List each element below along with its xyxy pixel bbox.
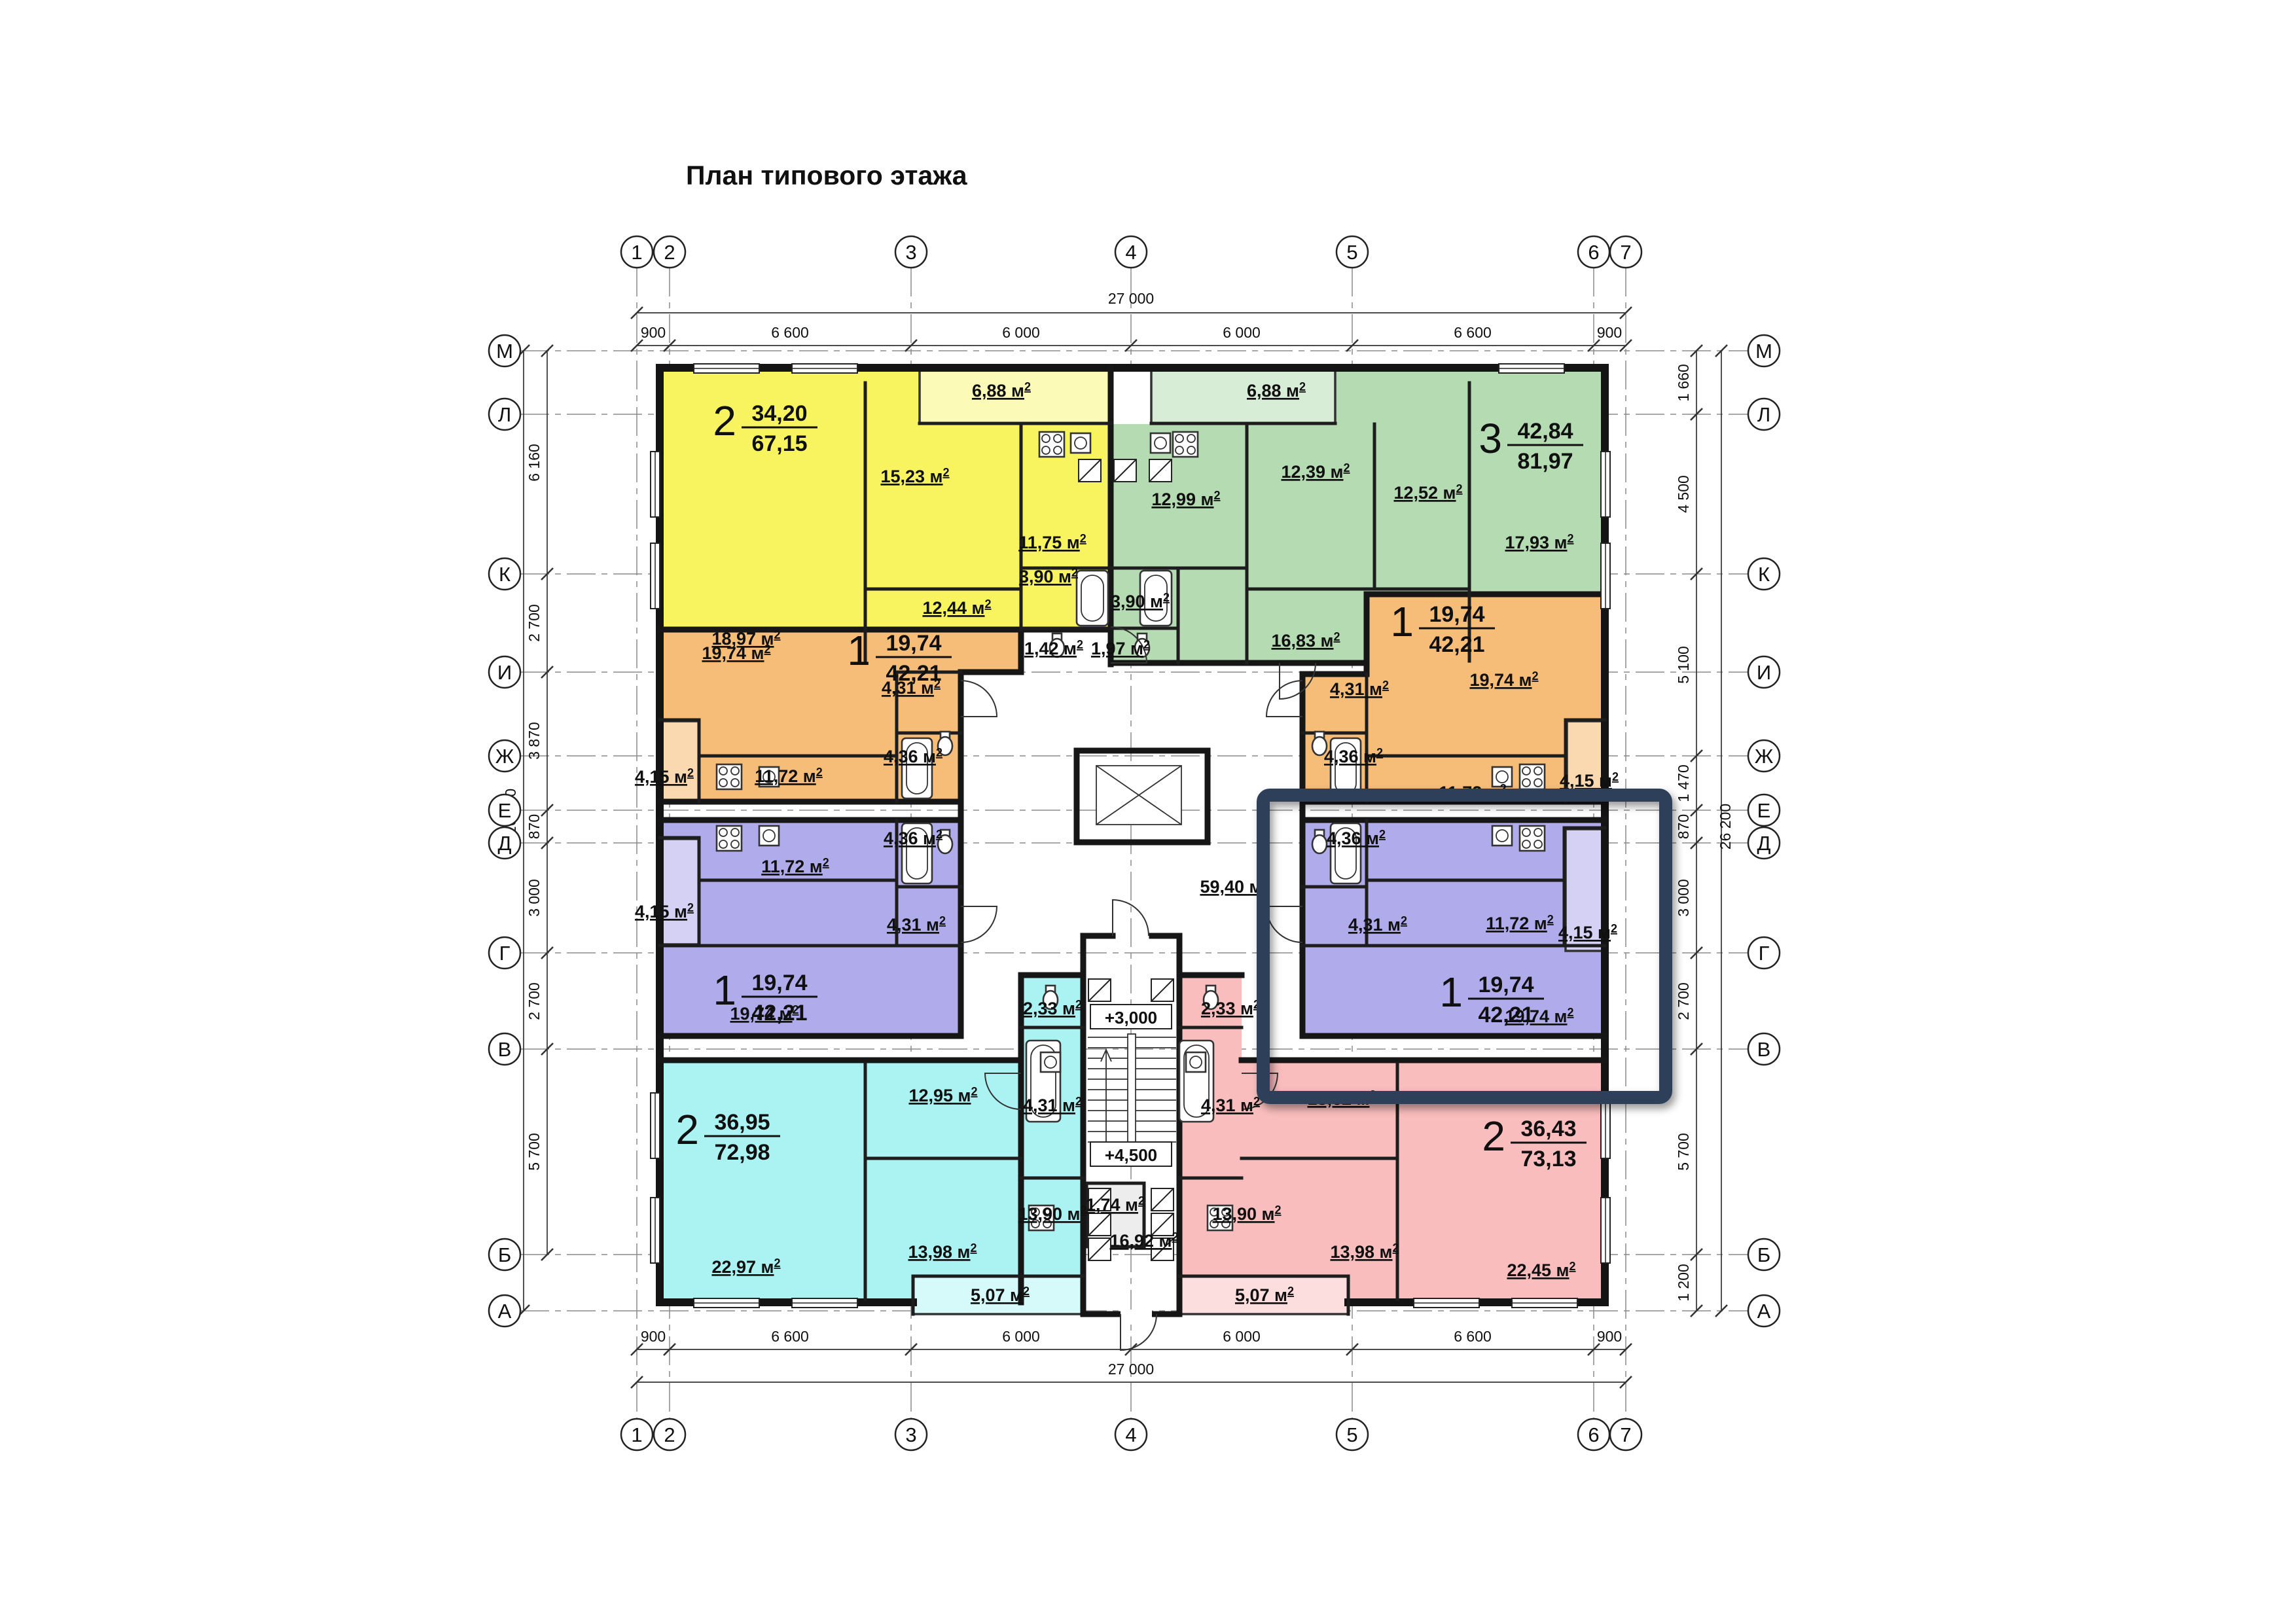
- room-area-label: 22,45 м2: [1507, 1260, 1575, 1280]
- balcony-orange-left: [661, 721, 699, 800]
- axis-bubble-Ж: Ж: [489, 740, 520, 772]
- room-area-label: 15,23 м2: [880, 466, 949, 486]
- level-mark: +4,500: [1090, 1142, 1172, 1166]
- balcony-green: [1151, 370, 1335, 423]
- axis-bubble-Л: Л: [1748, 399, 1780, 430]
- svg-text:В: В: [498, 1038, 512, 1061]
- stove-icon: [1039, 432, 1064, 457]
- dimension-label: 870: [1675, 814, 1692, 839]
- window-icon: [792, 364, 857, 373]
- room-area-label: 4,31 м2: [1023, 1095, 1082, 1115]
- dimension-label: 6 000: [1002, 1328, 1040, 1345]
- room-area-label: 6,88 м2: [1247, 380, 1306, 401]
- svg-text:36,95: 36,95: [714, 1110, 770, 1135]
- room-area-label: 13,90 м2: [1018, 1204, 1086, 1224]
- axis-bubble-Ж: Ж: [1748, 740, 1780, 772]
- vent-shaft-icon: [1088, 979, 1111, 1001]
- room-area-label: 12,39 м2: [1281, 461, 1350, 482]
- axis-bubble-И: И: [1748, 656, 1780, 688]
- dimension-label: 5 700: [1675, 1133, 1692, 1171]
- svg-text:И: И: [497, 661, 512, 684]
- dimension-label: 6 600: [771, 1328, 809, 1345]
- svg-text:Г: Г: [1759, 942, 1770, 965]
- stove-icon: [1520, 826, 1545, 851]
- axis-bubble-К: К: [1748, 558, 1780, 590]
- sink-icon: [1186, 1052, 1206, 1072]
- svg-text:1: 1: [631, 1423, 642, 1446]
- room-area-label: 11,75 м2: [1018, 532, 1086, 552]
- room-area-label: 4,15 м2: [635, 901, 694, 921]
- axis-bubble-7: 7: [1610, 236, 1641, 268]
- stove-icon: [1173, 432, 1198, 457]
- axis-bubble-6: 6: [1578, 1419, 1609, 1450]
- svg-text:Д: Д: [498, 832, 512, 855]
- window-icon: [651, 452, 660, 517]
- window-icon: [651, 543, 660, 609]
- stove-icon: [717, 764, 742, 789]
- sink-icon: [1041, 1052, 1060, 1072]
- svg-text:73,13: 73,13: [1520, 1147, 1576, 1171]
- svg-text:19,74: 19,74: [886, 631, 941, 656]
- dimension-label: 3 000: [526, 879, 543, 917]
- window-icon: [694, 364, 759, 373]
- dimension-label: 1 200: [1675, 1264, 1692, 1302]
- window-icon: [694, 1298, 759, 1308]
- svg-text:Б: Б: [1757, 1243, 1770, 1266]
- svg-text:42,21: 42,21: [886, 661, 941, 686]
- room-area-label: 11,72 м2: [761, 856, 829, 876]
- room-area-label: 4,36 м2: [1324, 746, 1383, 766]
- dimension-label: 6 160: [526, 444, 543, 482]
- svg-text:Б: Б: [498, 1243, 511, 1266]
- svg-text:М: М: [1755, 340, 1772, 363]
- svg-text:4: 4: [1125, 1423, 1136, 1446]
- axis-bubble-3: 3: [895, 236, 927, 268]
- window-icon: [651, 1198, 660, 1263]
- room-area-label: 11,72 м2: [1486, 913, 1554, 933]
- svg-text:Ж: Ж: [1755, 745, 1774, 768]
- dimension-label: 3 000: [1675, 879, 1692, 917]
- dimension-label: 1 470: [1675, 764, 1692, 802]
- svg-text:36,43: 36,43: [1520, 1116, 1576, 1141]
- floor-plan-svg: План типового этажа: [0, 0, 2296, 1623]
- svg-text:2: 2: [713, 397, 736, 444]
- room-area-label: 4,36 м2: [884, 746, 942, 766]
- axis-bubble-В: В: [489, 1033, 520, 1065]
- window-icon: [1601, 1198, 1610, 1263]
- room-area-label: 4,15 м2: [1558, 922, 1617, 942]
- svg-text:А: А: [498, 1300, 512, 1323]
- room-area-label: 2,33 м2: [1023, 998, 1082, 1018]
- toilet-icon: [1312, 830, 1327, 853]
- vent-shaft-icon: [1079, 459, 1101, 482]
- room-area-label: 19,74 м2: [1469, 669, 1538, 690]
- room-area-label: 22,97 м2: [711, 1257, 780, 1277]
- axis-bubble-2: 2: [654, 1419, 685, 1450]
- svg-text:Д: Д: [1757, 832, 1771, 855]
- svg-text:1: 1: [847, 627, 870, 674]
- dimension-label: 27 000: [1108, 1361, 1154, 1378]
- room-area-label: 11,72 м2: [755, 766, 823, 786]
- room-area-label: 3,90 м2: [1019, 566, 1078, 586]
- axis-bubble-7: 7: [1610, 1419, 1641, 1450]
- room-area-label: 1,97 м2: [1091, 638, 1150, 658]
- room-area-label: 5,07 м2: [971, 1285, 1030, 1305]
- room-area-label: 2,33 м2: [1201, 998, 1260, 1018]
- dimension-label: 6 600: [1454, 324, 1492, 341]
- window-icon: [792, 1298, 857, 1308]
- svg-text:42,21: 42,21: [1429, 632, 1484, 657]
- sink-icon: [759, 826, 779, 846]
- svg-text:+4,500: +4,500: [1105, 1145, 1157, 1165]
- window-icon: [1601, 452, 1610, 517]
- dimension-label: 2 700: [1675, 982, 1692, 1020]
- level-mark: +3,000: [1090, 1005, 1172, 1029]
- svg-text:Ж: Ж: [495, 745, 514, 768]
- dimension-label: 4 500: [1675, 475, 1692, 513]
- svg-text:6: 6: [1588, 1423, 1599, 1446]
- svg-text:В: В: [1757, 1038, 1771, 1061]
- svg-text:1: 1: [1390, 598, 1414, 645]
- axis-bubble-5: 5: [1336, 1419, 1368, 1450]
- dimension-label: 6 000: [1223, 324, 1261, 341]
- axis-bubble-И: И: [489, 656, 520, 688]
- svg-text:81,97: 81,97: [1517, 449, 1573, 474]
- dimension-label: 27 000: [1108, 290, 1154, 307]
- room-area-label: 4,36 м2: [1327, 828, 1386, 848]
- svg-text:2: 2: [664, 1423, 675, 1446]
- svg-text:Е: Е: [498, 799, 512, 822]
- stove-icon: [1520, 764, 1545, 789]
- sink-icon: [1492, 826, 1512, 846]
- dimension-label: 900: [1597, 324, 1622, 341]
- axis-bubble-М: М: [1748, 335, 1780, 366]
- vent-shaft-icon: [1088, 1238, 1111, 1260]
- vent-shaft-icon: [1149, 459, 1172, 482]
- bathtub-icon: [1077, 571, 1108, 626]
- room-area-label: 1,74 м2: [1086, 1194, 1145, 1215]
- axis-bubble-Е: Е: [1748, 794, 1780, 826]
- vent-shaft-icon: [1151, 1188, 1174, 1211]
- axis-bubble-3: 3: [895, 1419, 927, 1450]
- room-area-label: 12,99 м2: [1151, 489, 1220, 509]
- window-icon: [651, 1093, 660, 1158]
- svg-text:М: М: [496, 340, 513, 363]
- sink-icon: [1071, 433, 1090, 453]
- svg-text:А: А: [1757, 1300, 1771, 1323]
- room-area-label: 12,95 м2: [908, 1085, 977, 1105]
- svg-text:2: 2: [675, 1106, 699, 1153]
- dimension-label: 900: [1597, 1328, 1622, 1345]
- axis-bubble-М: М: [489, 335, 520, 366]
- sink-icon: [1151, 433, 1170, 453]
- svg-text:7: 7: [1620, 241, 1631, 264]
- svg-text:Е: Е: [1757, 799, 1771, 822]
- room-area-label: 13,90 м2: [1212, 1204, 1281, 1224]
- svg-text:1: 1: [1439, 969, 1463, 1016]
- page-title: План типового этажа: [686, 160, 968, 190]
- vent-shaft-icon: [1114, 459, 1136, 482]
- svg-text:И: И: [1757, 661, 1771, 684]
- room-area-label: 3,90 м2: [1111, 591, 1170, 611]
- svg-text:42,21: 42,21: [1478, 1003, 1534, 1027]
- room-area-label: 4,31 м2: [1348, 914, 1407, 935]
- svg-text:3: 3: [1479, 415, 1502, 462]
- svg-text:6: 6: [1588, 241, 1599, 264]
- dimension-label: 6 600: [1454, 1328, 1492, 1345]
- room-area-label: 4,31 м2: [1201, 1095, 1260, 1115]
- svg-text:42,21: 42,21: [751, 1001, 807, 1026]
- svg-text:19,74: 19,74: [751, 971, 807, 995]
- svg-text:5: 5: [1346, 241, 1357, 264]
- room-area-label: 6,88 м2: [972, 380, 1031, 401]
- svg-text:5: 5: [1346, 1423, 1357, 1446]
- dimension-label: 5 700: [526, 1133, 543, 1171]
- dimension-label: 870: [526, 814, 543, 839]
- svg-text:1: 1: [713, 967, 736, 1014]
- svg-text:2: 2: [1482, 1113, 1505, 1160]
- axis-bubble-6: 6: [1578, 236, 1609, 268]
- axis-bubble-4: 4: [1115, 236, 1147, 268]
- axis-bubble-Л: Л: [489, 399, 520, 430]
- room-area-label: 1,42 м2: [1024, 638, 1083, 658]
- axis-bubble-К: К: [489, 558, 520, 590]
- axis-bubble-2: 2: [654, 236, 685, 268]
- axis-bubble-Д: Д: [489, 827, 520, 859]
- axis-bubble-Б: Б: [1748, 1239, 1780, 1270]
- svg-text:72,98: 72,98: [714, 1140, 770, 1165]
- axis-bubble-Д: Д: [1748, 827, 1780, 859]
- room-area-label: 16,83 м2: [1271, 630, 1340, 651]
- axis-bubble-А: А: [489, 1295, 520, 1327]
- room-area-label: 4,31 м2: [1330, 679, 1389, 699]
- room-area-label: 13,98 м2: [908, 1241, 977, 1262]
- svg-text:67,15: 67,15: [751, 431, 807, 456]
- dimension-label: 6 000: [1223, 1328, 1261, 1345]
- vent-shaft-icon: [1151, 979, 1174, 1001]
- axis-bubble-5: 5: [1336, 236, 1368, 268]
- window-icon: [1414, 1298, 1479, 1308]
- room-area-label: 4,15 м2: [635, 766, 694, 787]
- svg-text:К: К: [1758, 563, 1770, 586]
- axis-bubble-Г: Г: [1748, 937, 1780, 969]
- stairs-icon: [1088, 1034, 1176, 1142]
- dimension-label: 900: [641, 324, 666, 341]
- stove-icon: [717, 826, 742, 851]
- dimension-label: 26 200: [1717, 804, 1734, 849]
- room-area-label: 17,93 м2: [1505, 532, 1573, 552]
- axis-bubble-1: 1: [621, 1419, 653, 1450]
- room-area-label: 5,07 м2: [1235, 1285, 1294, 1305]
- svg-text:3: 3: [905, 1423, 916, 1446]
- window-icon: [1512, 1298, 1577, 1308]
- vent-shaft-icon: [1088, 1213, 1111, 1236]
- axis-bubble-1: 1: [621, 236, 653, 268]
- svg-text:19,74: 19,74: [1429, 602, 1484, 627]
- room-area-label: 4,36 м2: [884, 828, 942, 848]
- svg-text:+3,000: +3,000: [1105, 1008, 1157, 1027]
- dimension-label: 6 600: [771, 324, 809, 341]
- room-area-label: 19,74 м2: [702, 643, 770, 663]
- dimension-label: 3 870: [526, 722, 543, 760]
- room-area-label: 12,52 м2: [1393, 482, 1462, 503]
- dimension-label: 5 100: [1675, 646, 1692, 684]
- svg-text:19,74: 19,74: [1478, 972, 1534, 997]
- dimension-label: 6 000: [1002, 324, 1040, 341]
- window-icon: [1601, 543, 1610, 609]
- window-icon: [1499, 364, 1564, 373]
- axis-bubble-А: А: [1748, 1295, 1780, 1327]
- dimension-label: 1 660: [1675, 364, 1692, 402]
- svg-text:Л: Л: [1757, 403, 1770, 426]
- axis-bubble-Е: Е: [489, 794, 520, 826]
- dimension-label: 900: [641, 1328, 666, 1345]
- svg-text:7: 7: [1620, 1423, 1631, 1446]
- svg-text:3: 3: [905, 241, 916, 264]
- svg-text:1: 1: [631, 241, 642, 264]
- room-area-label: 4,15 м2: [1560, 770, 1619, 791]
- room-area-label: 16,92 м2: [1109, 1230, 1178, 1251]
- dimension-label: 2 700: [526, 604, 543, 642]
- balcony-purple-left: [661, 839, 699, 944]
- svg-text:2: 2: [664, 241, 675, 264]
- svg-text:К: К: [499, 563, 511, 586]
- axis-bubble-В: В: [1748, 1033, 1780, 1065]
- svg-text:Л: Л: [498, 403, 511, 426]
- room-area-label: 4,31 м2: [887, 914, 946, 935]
- svg-text:4: 4: [1125, 241, 1136, 264]
- svg-text:Г: Г: [499, 942, 511, 965]
- svg-text:42,84: 42,84: [1517, 419, 1573, 444]
- dimension-label: 2 700: [526, 982, 543, 1020]
- axis-bubble-4: 4: [1115, 1419, 1147, 1450]
- room-area-label: 12,44 м2: [922, 597, 991, 618]
- axis-bubble-Б: Б: [489, 1239, 520, 1270]
- room-area-label: 13,98 м2: [1330, 1241, 1399, 1262]
- axis-bubble-Г: Г: [489, 937, 520, 969]
- svg-text:34,20: 34,20: [751, 401, 807, 426]
